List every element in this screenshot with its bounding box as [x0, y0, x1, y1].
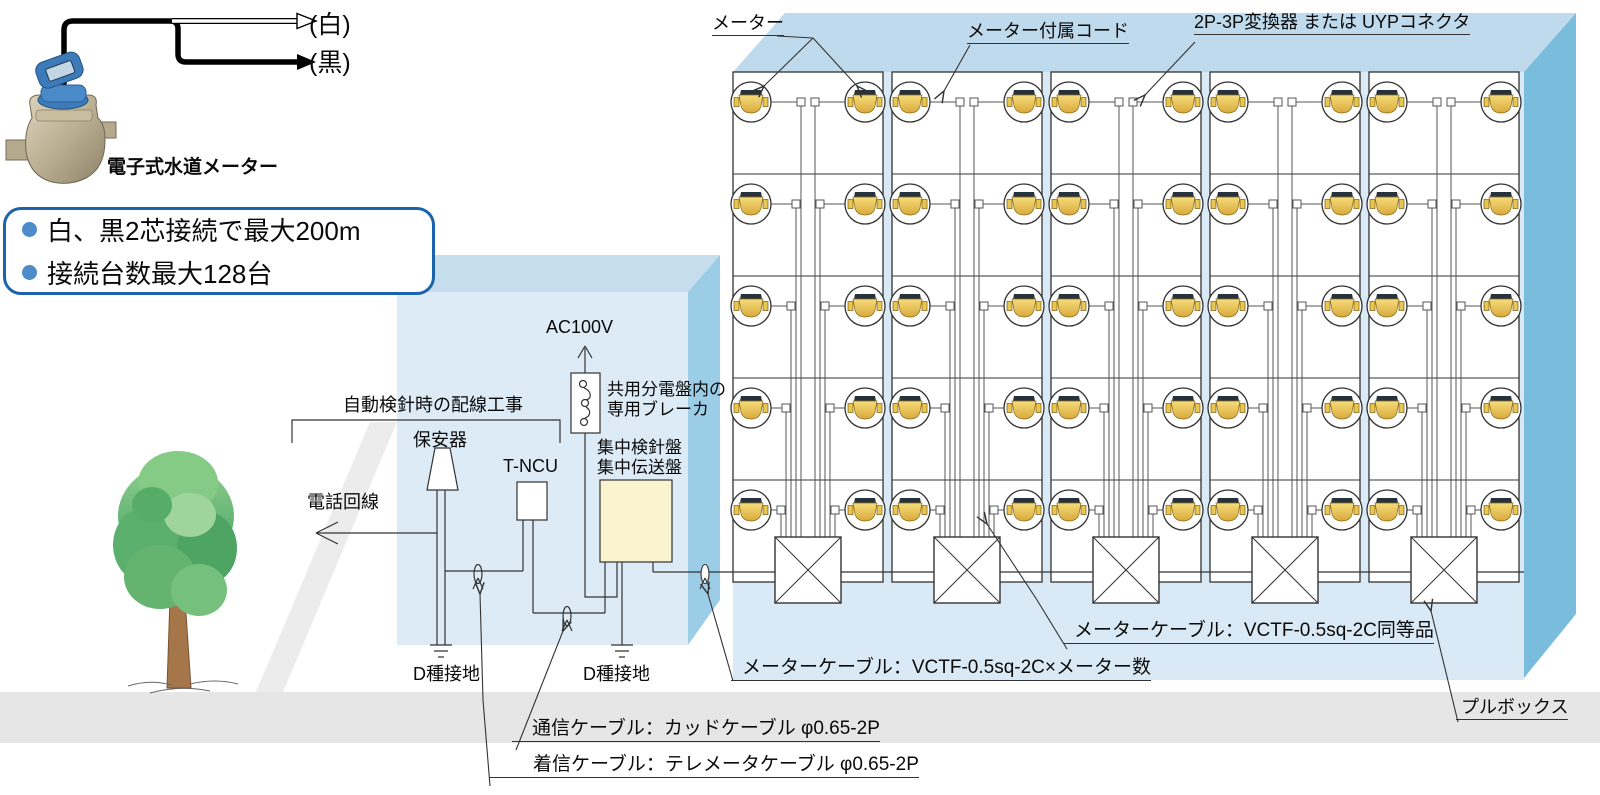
- spec-callout: 白、黒2芯接続で最大200m 接続台数最大128台: [3, 207, 435, 295]
- black-wire: [64, 21, 298, 96]
- meter-icon: [845, 184, 885, 224]
- meter-icon: [1004, 184, 1044, 224]
- meter-icon: [731, 184, 771, 224]
- meter-panels: [653, 72, 1524, 603]
- meter-icon: [1322, 286, 1362, 326]
- meter-icon: [1049, 286, 1089, 326]
- meter-icon: [1367, 184, 1407, 224]
- connector-icon: [1298, 302, 1306, 310]
- meter-icon: [1208, 82, 1248, 122]
- connector-icon: [975, 200, 983, 208]
- connector-icon: [792, 200, 800, 208]
- connector-icon: [1308, 506, 1316, 514]
- meter-icon: [731, 82, 771, 122]
- meter-icon: [1208, 286, 1248, 326]
- bullet-icon: [22, 265, 37, 280]
- tncu-icon: [517, 482, 547, 520]
- connector-icon: [1095, 506, 1103, 514]
- meter-icon: [1163, 82, 1203, 122]
- connector-icon: [1134, 200, 1142, 208]
- walk-path: [256, 422, 397, 692]
- connector-icon: [1303, 404, 1311, 412]
- meter-icon: [1049, 82, 1089, 122]
- meter-icon: [1049, 490, 1089, 530]
- meter-icon: [890, 82, 930, 122]
- meter-icon: [1163, 490, 1203, 530]
- meter-icon: [1322, 82, 1362, 122]
- bullet-icon: [22, 222, 37, 237]
- ground-label-left: D種接地: [413, 664, 480, 684]
- meter-icon: [1367, 490, 1407, 530]
- meter-icon: [845, 82, 885, 122]
- connector-icon: [1115, 98, 1123, 106]
- phone-line-label: 電話回線: [307, 492, 379, 512]
- converter-label: 2P-3P変換器 または UYPコネクタ: [1194, 12, 1470, 35]
- connector-icon: [946, 302, 954, 310]
- meter-icon: [1367, 286, 1407, 326]
- connector-icon: [970, 98, 978, 106]
- meter-label: メーター: [712, 13, 784, 36]
- connector-icon: [990, 506, 998, 514]
- wire-white-label: (白): [309, 11, 351, 39]
- connector-icon: [811, 98, 819, 106]
- connector-icon: [1452, 200, 1460, 208]
- connector-icon: [1139, 302, 1147, 310]
- meter-cable-count-label: メーターケーブル：VCTF-0.5sq-2C×メーター数: [731, 657, 1151, 681]
- connector-icon: [1413, 506, 1421, 514]
- meter-icon: [1004, 82, 1044, 122]
- connector-icon: [826, 404, 834, 412]
- meter-icon: [890, 286, 930, 326]
- connector-icon: [831, 506, 839, 514]
- connector-icon: [1100, 404, 1108, 412]
- concentrator-panel-icon: [600, 480, 672, 562]
- meter-icon: [1481, 184, 1521, 224]
- connector-icon: [797, 98, 805, 106]
- connector-icon: [1105, 302, 1113, 310]
- connector-icon: [1428, 200, 1436, 208]
- meter-icon: [731, 490, 771, 530]
- wiring-work-label: 自動検針時の配線工事: [343, 395, 523, 415]
- meter-icon: [1322, 490, 1362, 530]
- connector-icon: [951, 200, 959, 208]
- meter-icon: [1163, 388, 1203, 428]
- wire-black-label: (黒): [309, 49, 351, 77]
- pull-box-label: プルボックス: [1456, 697, 1568, 720]
- meter-icon: [1481, 388, 1521, 428]
- spec-line-2: 接続台数最大128台: [47, 254, 272, 291]
- meter-icon: [1004, 490, 1044, 530]
- meter-icon: [1004, 388, 1044, 428]
- connector-icon: [777, 506, 785, 514]
- meter-icon: [1163, 184, 1203, 224]
- connector-icon: [782, 404, 790, 412]
- meter-icon: [1208, 490, 1248, 530]
- connector-icon: [1144, 404, 1152, 412]
- concentrator-label-1: 集中検針盤: [597, 438, 682, 457]
- connector-icon: [1418, 404, 1426, 412]
- ac100v-label: AC100V: [546, 317, 613, 337]
- meter-icon: [1367, 82, 1407, 122]
- cord-label: メーター付属コード: [967, 21, 1129, 44]
- connector-icon: [1264, 302, 1272, 310]
- incoming-cable-label: 着信ケーブル：テレメータケーブル φ0.65-2P: [489, 754, 919, 778]
- connector-icon: [787, 302, 795, 310]
- tncu-label: T-NCU: [503, 456, 558, 476]
- connector-icon: [1457, 302, 1465, 310]
- meter-icon: [1481, 490, 1521, 530]
- connector-icon: [1462, 404, 1470, 412]
- meter-icon: [731, 286, 771, 326]
- meter-icon: [890, 184, 930, 224]
- meter-icon: [1049, 388, 1089, 428]
- connector-icon: [1259, 404, 1267, 412]
- meter-icon: [1163, 286, 1203, 326]
- connector-icon: [1269, 200, 1277, 208]
- meter-icon: [1481, 82, 1521, 122]
- meter-icon: [1367, 388, 1407, 428]
- ground-label-right: D種接地: [583, 664, 650, 684]
- meter-icon: [1208, 184, 1248, 224]
- meter-icon: [845, 490, 885, 530]
- concentrator-label-2: 集中伝送盤: [597, 458, 682, 477]
- meter-icon: [1481, 286, 1521, 326]
- connector-icon: [821, 302, 829, 310]
- spec-line-1: 白、黒2芯接続で最大200m: [47, 211, 361, 248]
- meter-icon: [845, 286, 885, 326]
- connector-icon: [1293, 200, 1301, 208]
- communication-cable-label: 通信ケーブル：カッドケーブル φ0.65-2P: [512, 718, 880, 742]
- connector-icon: [956, 98, 964, 106]
- connector-icon: [1149, 506, 1157, 514]
- meter-photo-caption: 電子式水道メーター: [107, 157, 278, 178]
- connector-icon: [1288, 98, 1296, 106]
- connector-icon: [936, 506, 944, 514]
- cable-loop-icon: [701, 565, 709, 584]
- connector-icon: [1129, 98, 1137, 106]
- connector-icon: [1274, 98, 1282, 106]
- diagram-canvas: 白、黒2芯接続で最大200m 接続台数最大128台 (白) (黒) 電子式水道メ…: [0, 0, 1600, 795]
- breaker-label-2: 専用ブレーカ: [607, 400, 709, 419]
- connector-icon: [1433, 98, 1441, 106]
- protector-label: 保安器: [413, 430, 467, 450]
- tree-illustration: [113, 451, 238, 693]
- meter-icon: [1322, 388, 1362, 428]
- meter-icon: [890, 388, 930, 428]
- connector-icon: [1254, 506, 1262, 514]
- meter-icon: [1322, 184, 1362, 224]
- connector-icon: [1423, 302, 1431, 310]
- connector-icon: [941, 404, 949, 412]
- connector-icon: [1447, 98, 1455, 106]
- connector-icon: [1467, 506, 1475, 514]
- connector-icon: [980, 302, 988, 310]
- connector-icon: [816, 200, 824, 208]
- meter-icon: [731, 388, 771, 428]
- connector-icon: [985, 404, 993, 412]
- connector-icon: [1110, 200, 1118, 208]
- meter-icon: [845, 388, 885, 428]
- meter-icon: [1004, 286, 1044, 326]
- meter-cable-equivalent-label: メーターケーブル：VCTF-0.5sq-2C同等品: [1064, 620, 1434, 644]
- meter-icon: [1208, 388, 1248, 428]
- breaker-label-1: 共用分電盤内の: [607, 380, 726, 399]
- meter-icon: [890, 490, 930, 530]
- meter-icon: [1049, 184, 1089, 224]
